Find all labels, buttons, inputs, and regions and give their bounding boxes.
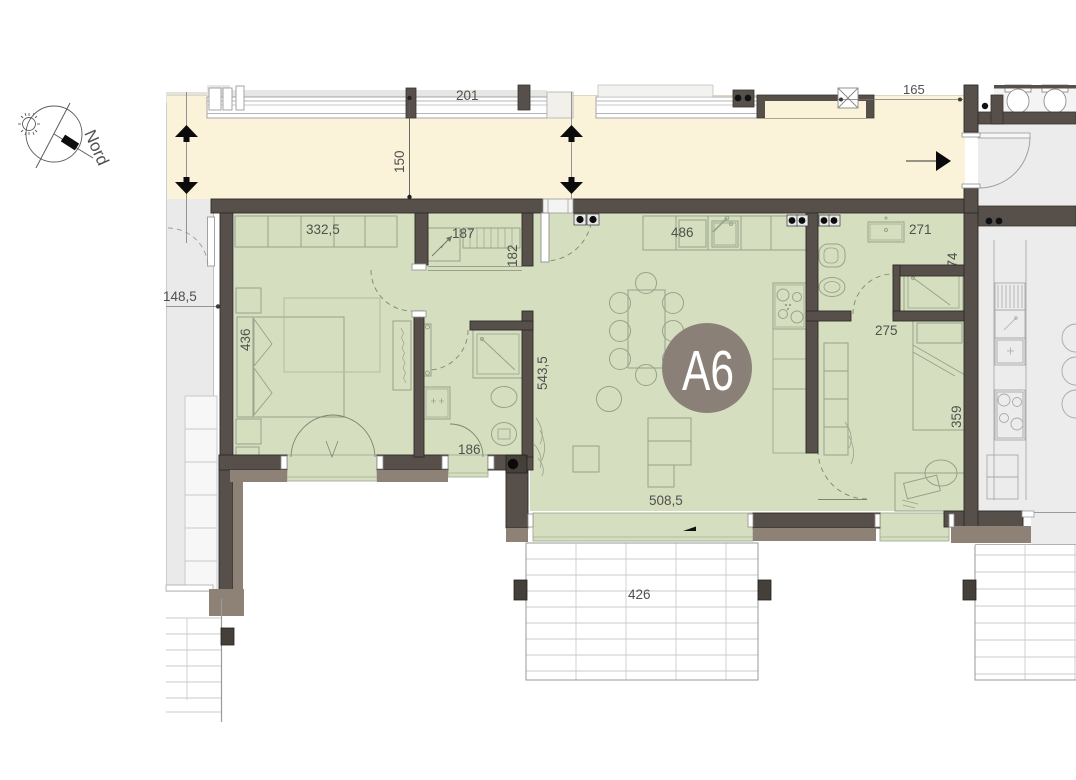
svg-text:182: 182 [505, 244, 520, 267]
svg-text:148,5: 148,5 [163, 289, 197, 304]
svg-text:150: 150 [392, 150, 407, 173]
svg-text:271: 271 [909, 222, 932, 237]
svg-text:201: 201 [456, 88, 479, 103]
svg-text:543,5: 543,5 [535, 356, 550, 390]
svg-text:486: 486 [671, 225, 694, 240]
svg-text:508,5: 508,5 [649, 493, 683, 508]
svg-text:187: 187 [452, 226, 475, 241]
svg-text:A6: A6 [682, 339, 734, 403]
svg-text:436: 436 [238, 328, 253, 351]
svg-text:174: 174 [945, 252, 960, 275]
svg-text:359: 359 [949, 405, 964, 428]
svg-text:275: 275 [875, 323, 898, 338]
svg-text:186: 186 [458, 442, 481, 457]
svg-text:165: 165 [903, 82, 925, 97]
svg-text:332,5: 332,5 [306, 222, 340, 237]
svg-text:426: 426 [628, 587, 651, 602]
